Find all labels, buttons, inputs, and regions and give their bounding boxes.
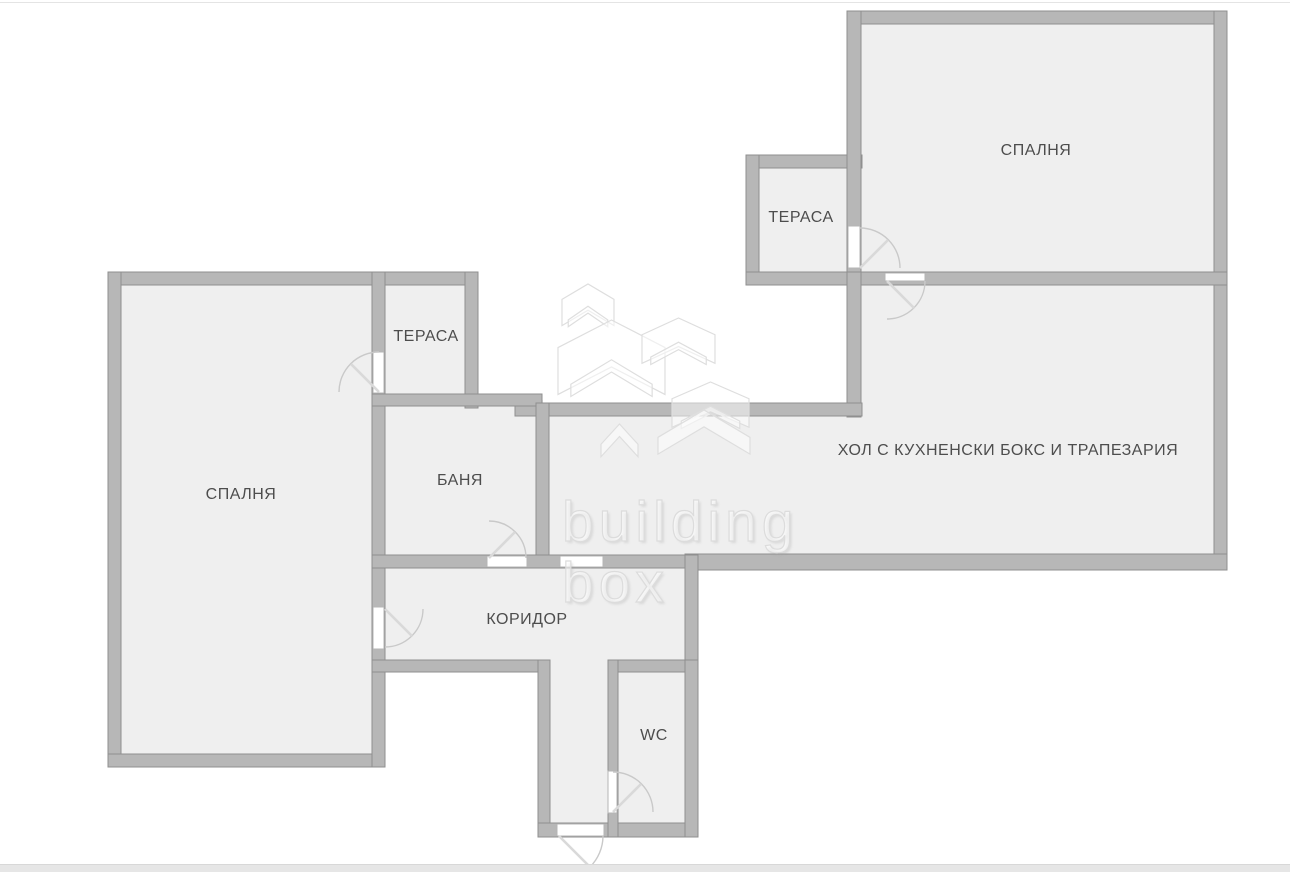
wall: [108, 272, 478, 285]
door-panel: [487, 556, 527, 567]
door-entrance: [557, 824, 604, 867]
wall: [465, 272, 478, 408]
wall: [746, 155, 862, 168]
floor-bedroom-left: [114, 278, 379, 761]
house-icon: [642, 318, 715, 365]
wall: [108, 272, 121, 767]
wall: [685, 660, 698, 837]
wall: [372, 394, 542, 406]
door-panel: [885, 273, 925, 281]
bottom-bar: [0, 864, 1290, 872]
wall: [108, 754, 385, 767]
wall: [847, 11, 1227, 24]
door-panel: [608, 771, 617, 813]
watermark-line1: building: [562, 492, 799, 553]
wall: [847, 272, 861, 417]
room-label-terrace-left: ТЕРАСА: [393, 328, 458, 346]
wall: [1214, 11, 1227, 570]
watermark-line2: box: [562, 553, 799, 614]
room-label-bedroom-top: СПАЛНЯ: [1001, 142, 1072, 160]
door-panel: [557, 824, 604, 836]
wall: [372, 660, 550, 672]
wall: [372, 272, 385, 767]
room-label-living-room: ХОЛ С КУХНЕНСКИ БОКС И ТРАПЕЗАРИЯ: [838, 442, 1178, 460]
room-floors: [114, 18, 1220, 830]
wall: [536, 403, 549, 568]
room-label-wc: WC: [640, 727, 668, 745]
wall: [746, 272, 862, 285]
wall: [746, 155, 759, 285]
floorplan-page: building box СПАЛНЯ ТЕРАСА ХОЛ С КУХНЕНС…: [0, 0, 1290, 872]
house-icon: [562, 284, 614, 327]
door-leaf: [559, 836, 590, 867]
room-label-bedroom-left: СПАЛНЯ: [206, 486, 277, 504]
wall: [538, 660, 550, 837]
room-label-bathroom: БАНЯ: [437, 472, 483, 490]
door-panel: [373, 607, 384, 649]
door-swing-arc: [590, 836, 603, 867]
door-panel: [848, 226, 860, 268]
watermark-text: building box: [562, 492, 799, 614]
room-label-terrace-top: ТЕРАСА: [768, 209, 833, 227]
room-label-corridor: КОРИДОР: [486, 611, 567, 629]
